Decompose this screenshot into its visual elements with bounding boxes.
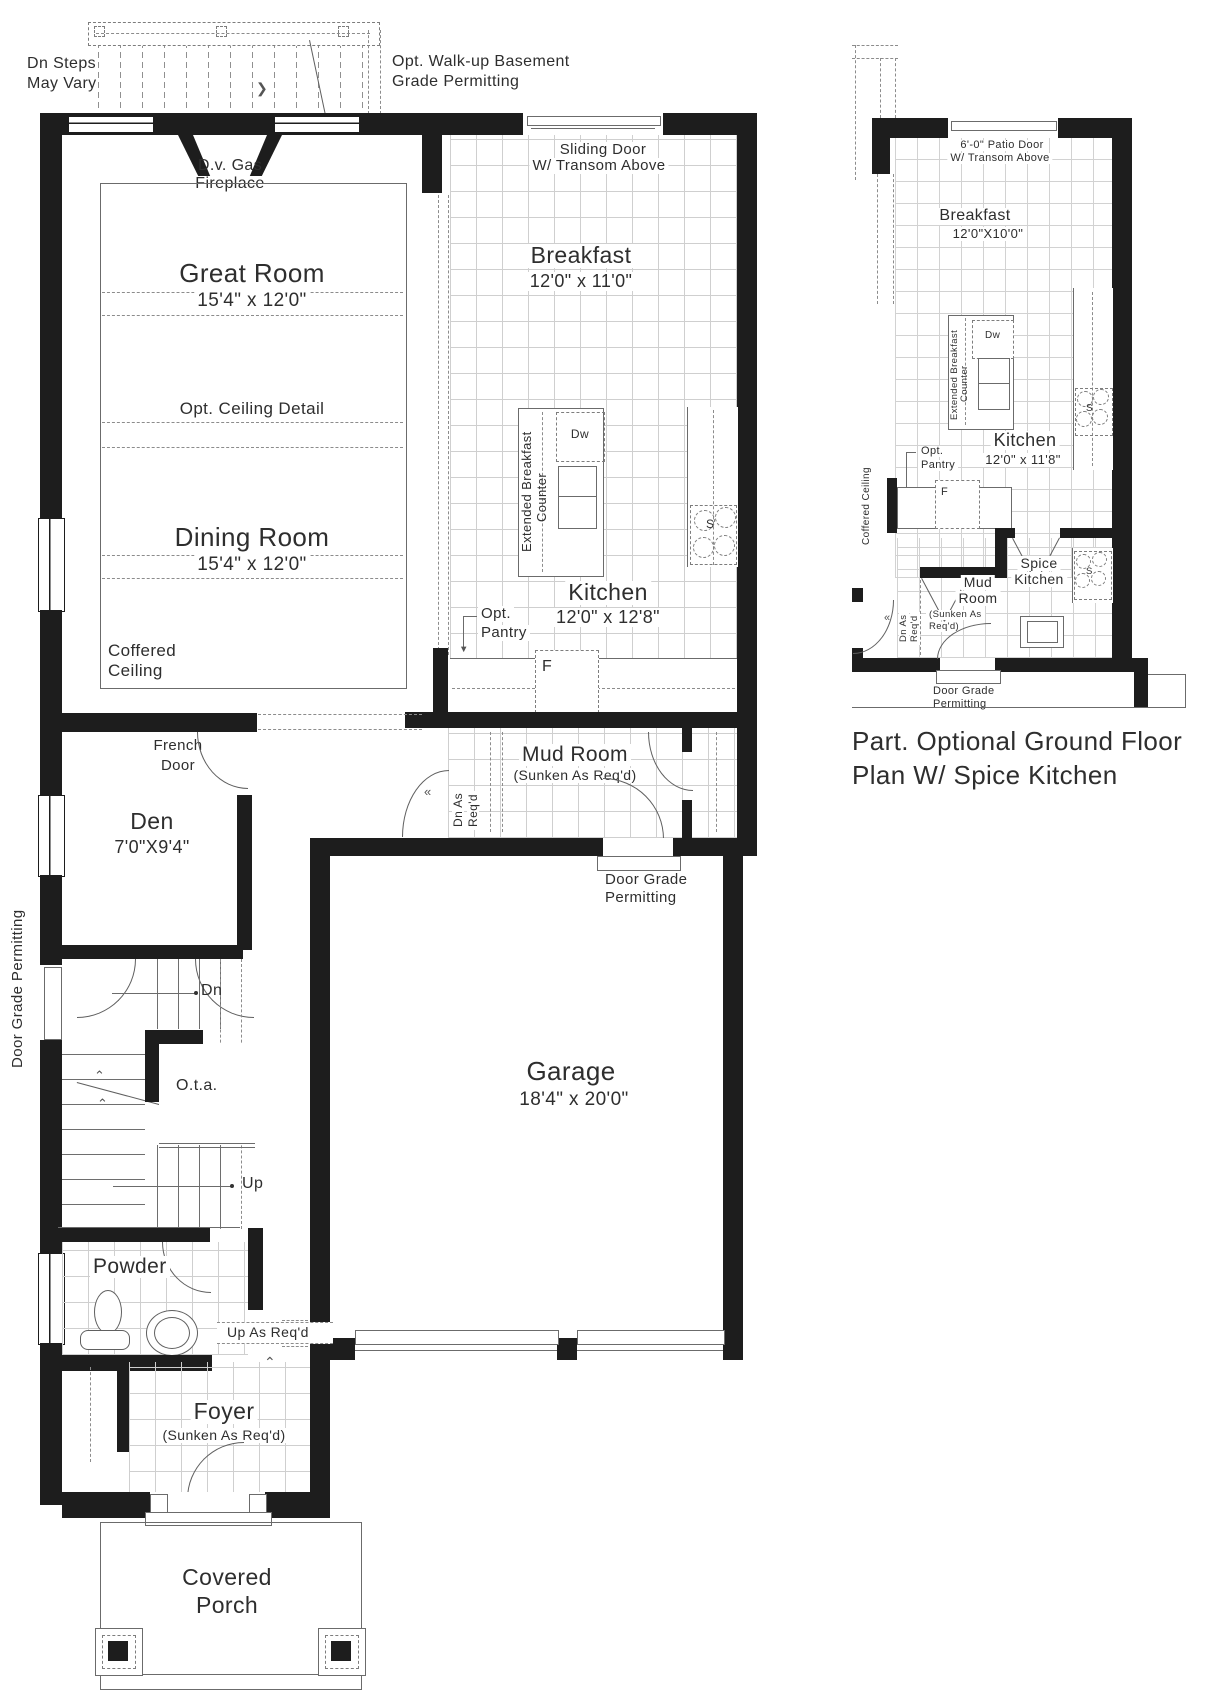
label-ota: O.t.a.: [176, 1078, 218, 1095]
caption-optional-plan: Part. Optional Ground Floor: [852, 728, 1182, 755]
opt-wall-bottom: [995, 658, 1112, 672]
opt-wall-spice-top: [1060, 528, 1112, 538]
deck-rail: [368, 30, 369, 114]
label-kitchen-dims: 12'0" x 12'8": [553, 608, 663, 627]
opt-deck-dashed: [852, 58, 898, 59]
label-garage: Garage: [526, 1058, 615, 1085]
wall-pier: [682, 800, 692, 838]
sliding-door-track: [531, 128, 655, 129]
deck-inner-line: [96, 33, 370, 34]
opt-wall-pier: [995, 528, 1007, 574]
label-dining-room-dims: 15'4" x 12'0": [194, 555, 309, 575]
label-opt-spice-kitchen: Kitchen: [1011, 572, 1067, 587]
label-mud-room: Mud Room: [519, 744, 631, 766]
powder-sink-basin: [154, 1317, 190, 1349]
wall-garage-left: [310, 838, 330, 1360]
deck-post: [338, 26, 349, 37]
opt-entry-threshold: [936, 670, 1001, 684]
deck-direction-arrow: ❯: [256, 80, 268, 97]
deck-steps: [98, 46, 370, 112]
label-french-door: French: [153, 738, 202, 754]
label-den: Den: [130, 810, 173, 834]
up-as-reqd-dashed: [217, 1322, 333, 1323]
label-opt-dn-as-reqd: Req'd: [910, 612, 920, 645]
burner: [714, 535, 735, 556]
step-mark: ⌃: [264, 1354, 276, 1371]
opt-patio-door-panel: [951, 121, 1057, 131]
deck-post: [94, 26, 105, 37]
label-opt-pantry: Pantry: [918, 460, 958, 471]
label-garage-dims: 18'4" x 20'0": [519, 1090, 628, 1110]
label-up: Up: [242, 1176, 263, 1193]
note-dn-steps: Dn Steps: [27, 56, 96, 73]
opt-door-swing-mark: «: [884, 612, 890, 624]
burner: [1091, 571, 1106, 586]
opt-wall-spice-top: [1007, 528, 1015, 538]
wall-garage-front: [557, 1338, 577, 1360]
label-den-dims: 7'0"X9'4": [114, 838, 189, 857]
garage-entry-threshold: [597, 856, 681, 871]
wall-left: [40, 113, 62, 518]
wall-garage-right: [723, 838, 743, 1360]
window: [38, 795, 65, 877]
window: [38, 1253, 65, 1345]
label-dn-as-reqd: Req'd: [467, 791, 479, 830]
sunken-step-dashed: [502, 732, 503, 832]
wall-foyer-front: [62, 1492, 150, 1518]
french-door-swing: [197, 732, 248, 789]
wall-den-top: [58, 713, 257, 732]
island-sink: [558, 496, 597, 529]
opt-wall-dashed: [877, 174, 878, 304]
island-sink: [558, 466, 597, 499]
label-covered-porch: Porch: [196, 1594, 258, 1618]
label-dishwasher: Dw: [571, 428, 589, 440]
label-powder: Powder: [90, 1256, 170, 1278]
opt-pantry-leader: [906, 452, 916, 453]
label-up-as-reqd: Up As Req'd: [227, 1325, 309, 1340]
opt-wall-left: [872, 118, 890, 174]
label-opt-mud-room: Room: [956, 591, 1001, 606]
opt-counter-dashed: [1092, 292, 1093, 466]
opt-island-sink: [978, 358, 1010, 386]
wall-kitchen-bottom: [405, 712, 757, 728]
label-sliding-door: Sliding Door: [557, 142, 650, 158]
porch-post-core: [331, 1641, 351, 1661]
garage-door-track: [577, 1350, 723, 1351]
label-opt-mud-room: Mud: [961, 575, 995, 590]
opt-pantry-leader: [906, 452, 907, 490]
door-swing: [402, 770, 449, 837]
label-opt-breakfast-dims: 12'0"X10'0": [950, 227, 1027, 241]
burner: [693, 537, 714, 558]
label-opt-spice-stove: S: [1086, 567, 1093, 577]
ceiling-detail-line: [102, 578, 403, 579]
ceiling-detail-line: [102, 447, 403, 448]
opt-foundation-line: [852, 707, 1185, 708]
label-opt-mud-sunken: (Sunken As: [926, 610, 985, 620]
label-opt-spice-kitchen: Spice: [1017, 556, 1060, 571]
note-dn-steps: May Vary: [27, 76, 97, 93]
label-opt-kitchen: Kitchen: [991, 431, 1060, 450]
garage-entry-opening: [603, 838, 673, 856]
burner: [1092, 409, 1108, 425]
label-fireplace: D.v. Gas: [198, 158, 262, 175]
opt-counter-right: [1073, 288, 1113, 470]
wall-garage-top: [673, 838, 757, 856]
toilet-bowl: [94, 1290, 122, 1334]
label-french-door: Door: [161, 758, 195, 774]
porch-post-core: [108, 1641, 128, 1661]
opt-island-sink: [978, 383, 1010, 410]
ceiling-detail-line: [102, 422, 403, 423]
grade-dashed: [282, 1346, 308, 1347]
opt-deck-dashed: [855, 45, 856, 180]
label-patio-door: W/ Transom Above: [947, 153, 1052, 164]
label-door-grade-side: Door Grade Permitting: [10, 910, 26, 1068]
label-door-grade: Permitting: [605, 890, 677, 906]
label-foyer-sunken: (Sunken As Req'd): [159, 1428, 288, 1443]
wall-ota: [145, 1030, 159, 1102]
label-fridge: F: [542, 659, 552, 676]
label-opt-fridge: F: [941, 487, 948, 498]
stair-break-mark: ⌃: [94, 1068, 105, 1084]
closet-dashed: [90, 1367, 91, 1462]
label-sliding-door: W/ Transom Above: [529, 158, 668, 174]
deck-rail: [380, 30, 381, 114]
deck-post: [216, 26, 227, 37]
label-breakfast-dims: 12'0" x 11'0": [527, 272, 636, 291]
garage-door: [577, 1330, 725, 1345]
ceiling-detail-line: [102, 315, 403, 316]
label-stove: S: [706, 518, 714, 530]
wall-garage-top: [310, 838, 603, 856]
wall-left: [40, 610, 62, 795]
label-door-grade: Door Grade: [605, 872, 687, 888]
door-swing-mark: «: [424, 784, 431, 799]
toilet-tank: [80, 1330, 130, 1350]
label-opt-pantry: Opt.: [918, 446, 946, 457]
opt-wall-bottom: [852, 658, 940, 672]
label-dn-as-reqd: Dn As: [452, 790, 464, 830]
label-extended-counter: Extended Breakfast: [520, 431, 534, 552]
closet-rod-dashed: [716, 732, 717, 832]
sliding-door-panel: [527, 116, 661, 126]
label-opt-door-grade: Door Grade: [933, 686, 994, 697]
opt-spice-sink-basin: [1027, 621, 1058, 643]
label-coffered-ceiling: Coffered: [108, 642, 176, 660]
burner: [1092, 552, 1107, 567]
pantry-leader: [463, 616, 477, 617]
floor-plan: ❯ Dn Steps May Vary Opt. Walk-up Basemen…: [0, 0, 1209, 1692]
window: [68, 116, 154, 133]
wall-stub: [117, 1367, 129, 1452]
front-door-sidelight: [150, 1494, 168, 1514]
side-door: [44, 967, 62, 1040]
wall-foyer-right: [310, 1360, 330, 1498]
label-opt-dn-as-reqd: Dn As: [899, 612, 909, 645]
wall-right: [737, 113, 757, 838]
wall-den-right: [237, 795, 252, 950]
opt-deck-dashed: [880, 58, 881, 118]
label-dn: Dn: [201, 983, 222, 1000]
label-great-room: Great Room: [176, 260, 328, 287]
opt-wall-dashed: [893, 174, 894, 304]
pantry-arrow: ▼: [459, 644, 468, 655]
grade-dashed: [282, 1320, 308, 1321]
note-walkup-basement: Grade Permitting: [392, 74, 519, 91]
up-leader: [113, 1186, 233, 1187]
opt-entry-door-swing: [853, 600, 894, 654]
label-foyer: Foyer: [191, 1400, 258, 1424]
burner: [1093, 389, 1109, 405]
label-coffered-ceiling: Ceiling: [108, 662, 163, 680]
front-door-sidelight: [249, 1494, 267, 1514]
note-walkup-basement: Opt. Walk-up Basement: [392, 54, 570, 71]
window: [274, 116, 360, 133]
garage-door: [355, 1330, 559, 1345]
caption-optional-plan: Plan W/ Spice Kitchen: [852, 762, 1118, 789]
opt-deck-dashed: [895, 58, 896, 118]
winder-treads: [62, 1030, 145, 1230]
opt-foundation-line: [1185, 674, 1186, 708]
label-extended-counter: Counter: [535, 473, 549, 522]
wall-foyer-front: [265, 1492, 330, 1518]
opt-wall-right: [1112, 118, 1132, 672]
deck-outline: [88, 22, 380, 46]
garage-door-track: [355, 1350, 557, 1351]
opening-header-dashed: [258, 714, 422, 715]
wall-powder-top: [58, 1228, 210, 1242]
label-opt-dishwasher: Dw: [985, 331, 1000, 341]
label-opt-kitchen-dims: 12'0" x 11'8": [982, 453, 1064, 467]
label-opt-pantry: Pantry: [478, 625, 530, 641]
burner: [715, 507, 736, 528]
dn-leader: [112, 993, 196, 994]
label-opt-pantry: Opt.: [478, 606, 514, 622]
wall-left: [40, 1343, 62, 1505]
opt-step-dashed: [920, 580, 921, 655]
opt-wall-stub: [887, 478, 897, 533]
wall-stub: [433, 648, 448, 712]
wall-garage-front: [723, 1338, 743, 1360]
wall-den-bottom: [58, 945, 243, 959]
label-breakfast: Breakfast: [528, 244, 635, 268]
stair-break-mark: ⌃: [97, 1096, 108, 1112]
up-as-reqd-dashed: [217, 1343, 333, 1344]
door-swing: [77, 959, 136, 1018]
label-opt-ceiling-detail: Opt. Ceiling Detail: [177, 400, 328, 418]
label-kitchen: Kitchen: [565, 581, 651, 605]
label-opt-stove: S: [1086, 404, 1093, 414]
opt-wall-corner: [1134, 658, 1148, 707]
label-covered-porch: Covered: [182, 1566, 272, 1590]
opt-foundation-line: [1148, 674, 1185, 675]
up-leader-dot: [230, 1184, 234, 1188]
sunken-step-dashed: [490, 732, 491, 832]
room-divider-dashed: [438, 195, 439, 655]
opening-header-dashed: [258, 729, 422, 730]
label-dining-room: Dining Room: [172, 524, 333, 551]
wall-left: [40, 1040, 62, 1253]
window: [38, 518, 65, 612]
opt-deck-dashed: [852, 45, 898, 46]
room-divider-dashed: [448, 195, 449, 655]
label-opt-coffered: Coffered Ceiling: [862, 464, 872, 548]
wall-stub: [422, 113, 442, 193]
label-patio-door: 6'-0" Patio Door: [957, 140, 1046, 151]
label-opt-breakfast: Breakfast: [936, 208, 1013, 225]
label-great-room-dims: 15'4" x 12'0": [194, 291, 309, 311]
label-opt-extended-counter: Counter: [960, 365, 970, 402]
label-opt-door-grade: Permitting: [933, 699, 987, 710]
wall-stub: [248, 1228, 263, 1310]
dn-leader-dot: [194, 991, 198, 995]
ota-edge: [159, 1143, 255, 1144]
